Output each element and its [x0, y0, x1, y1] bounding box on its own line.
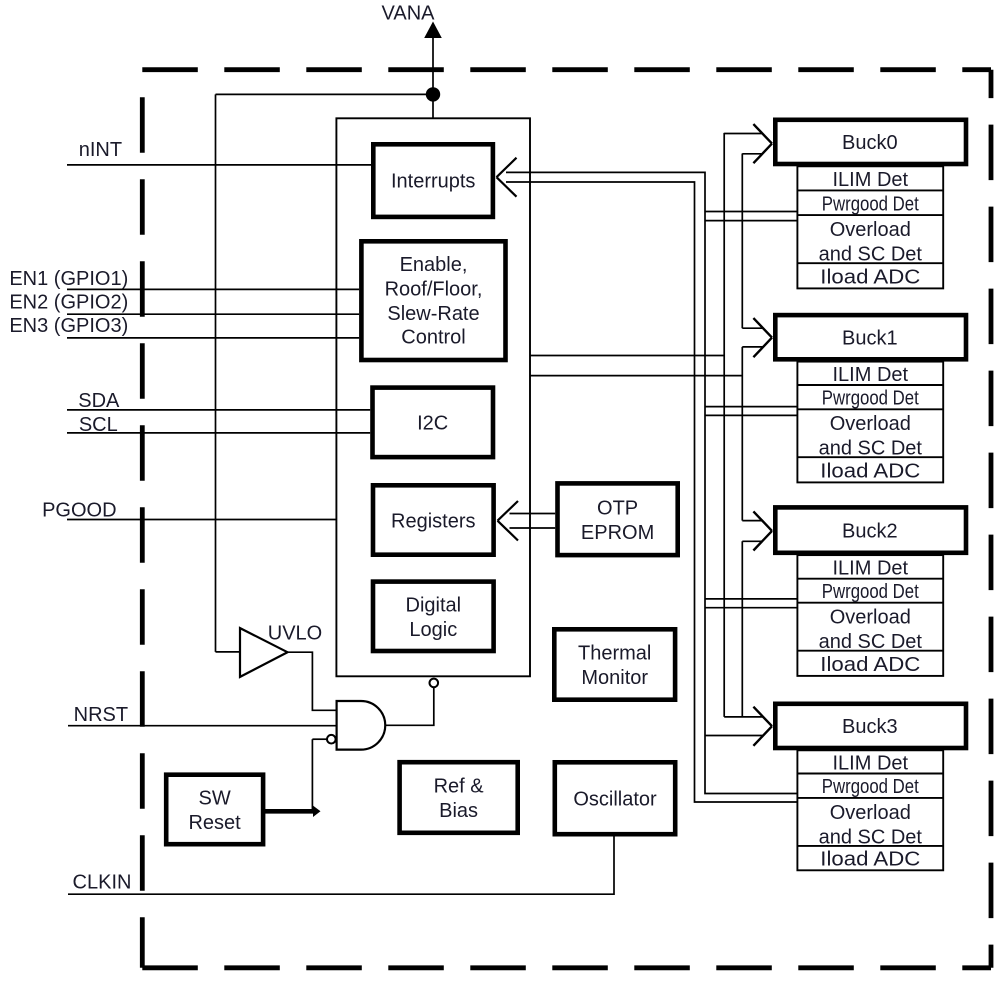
- svg-text:EN2 (GPIO2): EN2 (GPIO2): [9, 292, 128, 314]
- svg-text:EN3 (GPIO3): EN3 (GPIO3): [9, 315, 128, 337]
- svg-text:Ref &: Ref &: [434, 776, 485, 798]
- svg-text:VANA: VANA: [382, 3, 436, 25]
- svg-text:Roof/Floor,: Roof/Floor,: [385, 279, 483, 301]
- svg-text:NRST: NRST: [74, 704, 128, 726]
- svg-text:Overload: Overload: [830, 802, 911, 824]
- svg-text:Overload: Overload: [830, 607, 911, 629]
- svg-text:Pwrgood Det: Pwrgood Det: [822, 776, 919, 798]
- svg-text:Digital: Digital: [406, 595, 462, 617]
- svg-text:Pwrgood Det: Pwrgood Det: [822, 388, 919, 410]
- svg-text:Slew-Rate: Slew-Rate: [387, 303, 479, 325]
- svg-text:PGOOD: PGOOD: [42, 500, 116, 522]
- svg-text:Iload ADC: Iload ADC: [820, 849, 920, 871]
- svg-text:Reset: Reset: [188, 812, 241, 834]
- svg-text:and SC Det: and SC Det: [819, 244, 923, 266]
- svg-text:I2C: I2C: [417, 413, 448, 435]
- svg-text:SDA: SDA: [78, 390, 120, 412]
- svg-text:CLKIN: CLKIN: [73, 872, 132, 894]
- svg-text:OTP: OTP: [597, 497, 638, 519]
- svg-text:and SC Det: and SC Det: [819, 826, 923, 848]
- svg-text:UVLO: UVLO: [268, 622, 322, 644]
- svg-text:Overload: Overload: [830, 219, 911, 241]
- svg-text:Buck2: Buck2: [842, 520, 898, 542]
- svg-text:nINT: nINT: [79, 139, 122, 161]
- svg-text:Registers: Registers: [391, 510, 475, 532]
- svg-text:ILIM Det: ILIM Det: [833, 752, 909, 774]
- svg-text:Pwrgood Det: Pwrgood Det: [822, 581, 919, 603]
- svg-text:Iload ADC: Iload ADC: [820, 654, 920, 676]
- svg-text:Interrupts: Interrupts: [391, 171, 475, 193]
- svg-text:Iload ADC: Iload ADC: [820, 460, 920, 482]
- svg-text:Iload ADC: Iload ADC: [820, 266, 920, 288]
- svg-text:Bias: Bias: [439, 800, 478, 822]
- svg-text:Monitor: Monitor: [581, 667, 648, 689]
- svg-text:EPROM: EPROM: [581, 522, 654, 544]
- svg-text:Logic: Logic: [409, 619, 457, 641]
- svg-text:SW: SW: [198, 788, 230, 810]
- svg-text:Buck0: Buck0: [842, 132, 898, 154]
- svg-text:Buck3: Buck3: [842, 716, 898, 738]
- svg-text:Overload: Overload: [830, 413, 911, 435]
- svg-text:Oscillator: Oscillator: [573, 789, 657, 811]
- svg-text:EN1 (GPIO1): EN1 (GPIO1): [9, 268, 128, 290]
- svg-text:Control: Control: [401, 327, 465, 349]
- svg-text:ILIM Det: ILIM Det: [833, 169, 909, 191]
- svg-text:ILIM Det: ILIM Det: [833, 364, 909, 386]
- svg-text:Buck1: Buck1: [842, 328, 898, 350]
- svg-text:Pwrgood Det: Pwrgood Det: [822, 193, 919, 215]
- svg-text:and SC Det: and SC Det: [819, 438, 923, 460]
- svg-text:Thermal: Thermal: [578, 643, 651, 665]
- svg-text:Enable,: Enable,: [400, 254, 468, 276]
- svg-text:ILIM Det: ILIM Det: [833, 557, 909, 579]
- svg-text:and SC Det: and SC Det: [819, 631, 923, 653]
